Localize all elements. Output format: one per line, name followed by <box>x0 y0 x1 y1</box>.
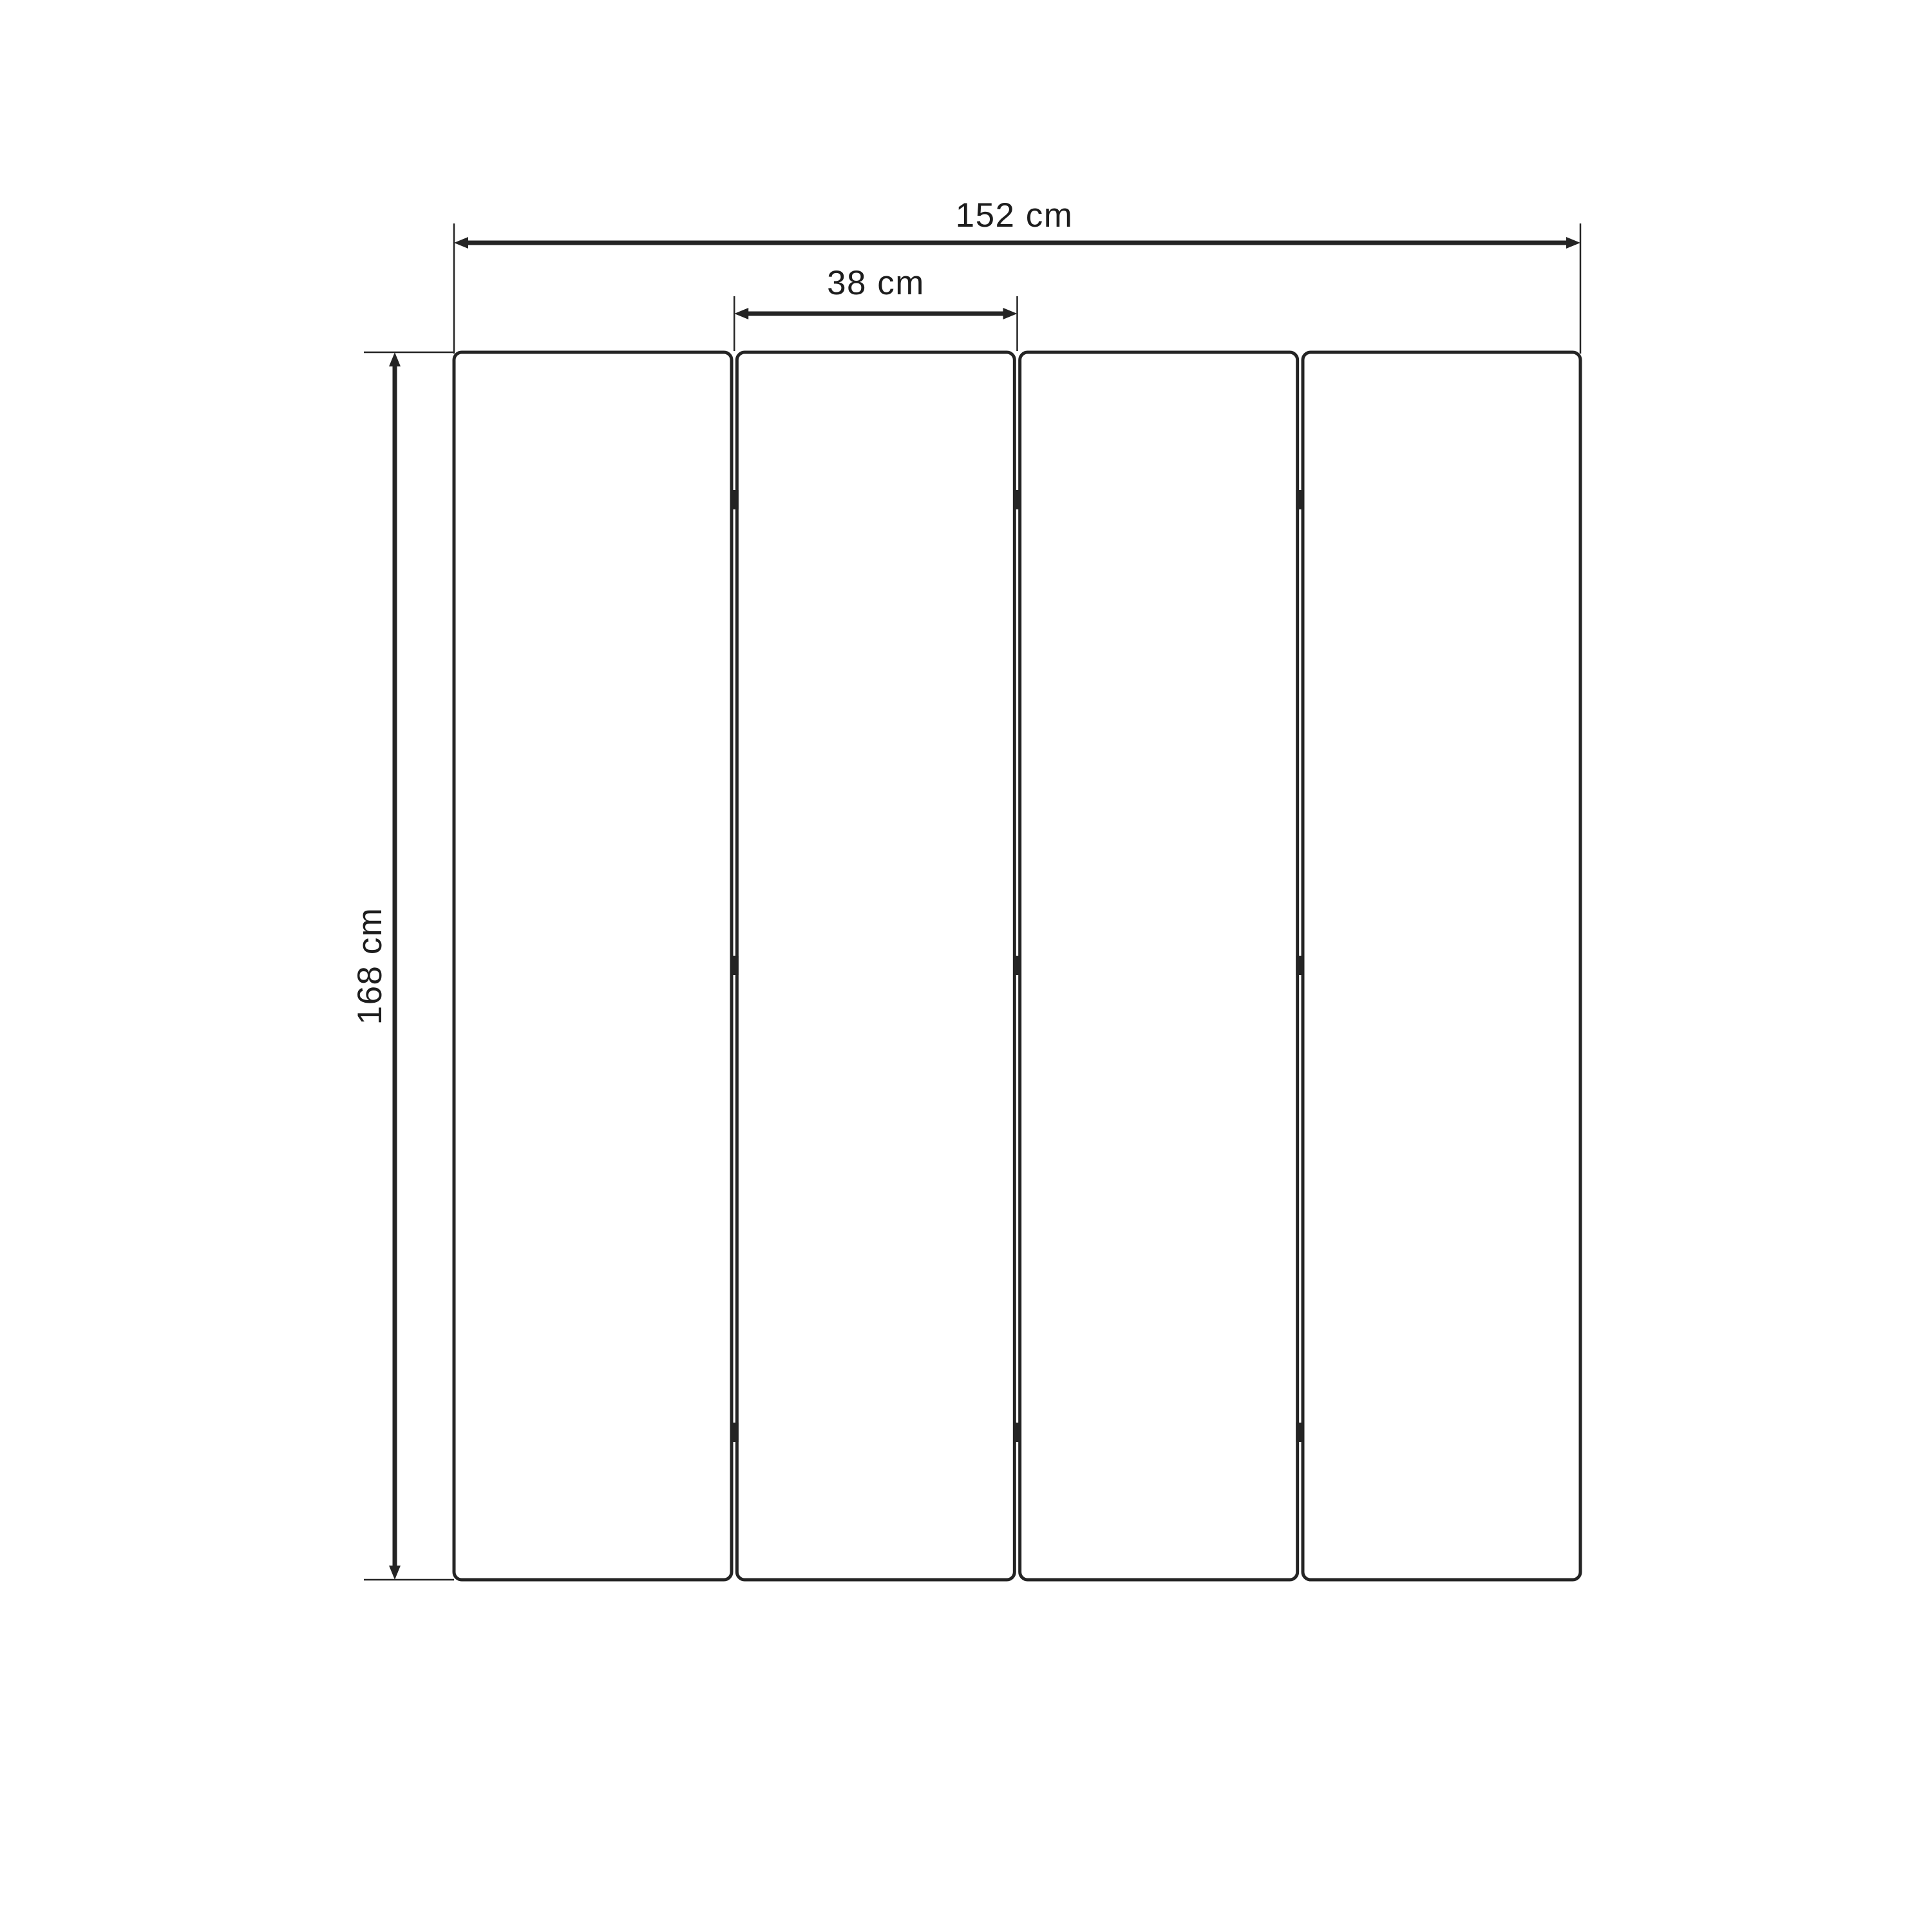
hinge-mark <box>730 1423 739 1442</box>
hinge-mark <box>730 956 739 975</box>
arrow-left-icon <box>454 237 468 249</box>
hinge-mark <box>1013 490 1021 509</box>
height-label: 168 cm <box>351 907 389 1025</box>
panel-width-dimension: 38 cm <box>734 264 1017 351</box>
dimension-diagram: 152 cm 38 cm 168 cm <box>0 0 1932 1932</box>
panel-width-label: 38 cm <box>827 264 925 302</box>
hinge-mark <box>730 490 739 509</box>
hinge-mark <box>1296 1423 1304 1442</box>
panel-4 <box>1303 352 1580 1580</box>
hinge-mark <box>1013 956 1021 975</box>
panel-1 <box>454 352 732 1580</box>
folding-screen-drawing: 152 cm 38 cm 168 cm <box>0 0 1932 1932</box>
arrow-left-icon <box>734 308 748 319</box>
hinge-mark <box>1013 1423 1021 1442</box>
arrow-right-icon <box>1566 237 1580 249</box>
total-width-label: 152 cm <box>956 196 1074 234</box>
arrow-down-icon <box>389 1566 401 1580</box>
panel-3 <box>1020 352 1298 1580</box>
height-dimension: 168 cm <box>351 352 454 1580</box>
arrow-up-icon <box>389 352 401 366</box>
panel-2 <box>737 352 1014 1580</box>
arrow-right-icon <box>1003 308 1018 319</box>
hinge-mark <box>1296 956 1304 975</box>
hinge-mark <box>1296 490 1304 509</box>
